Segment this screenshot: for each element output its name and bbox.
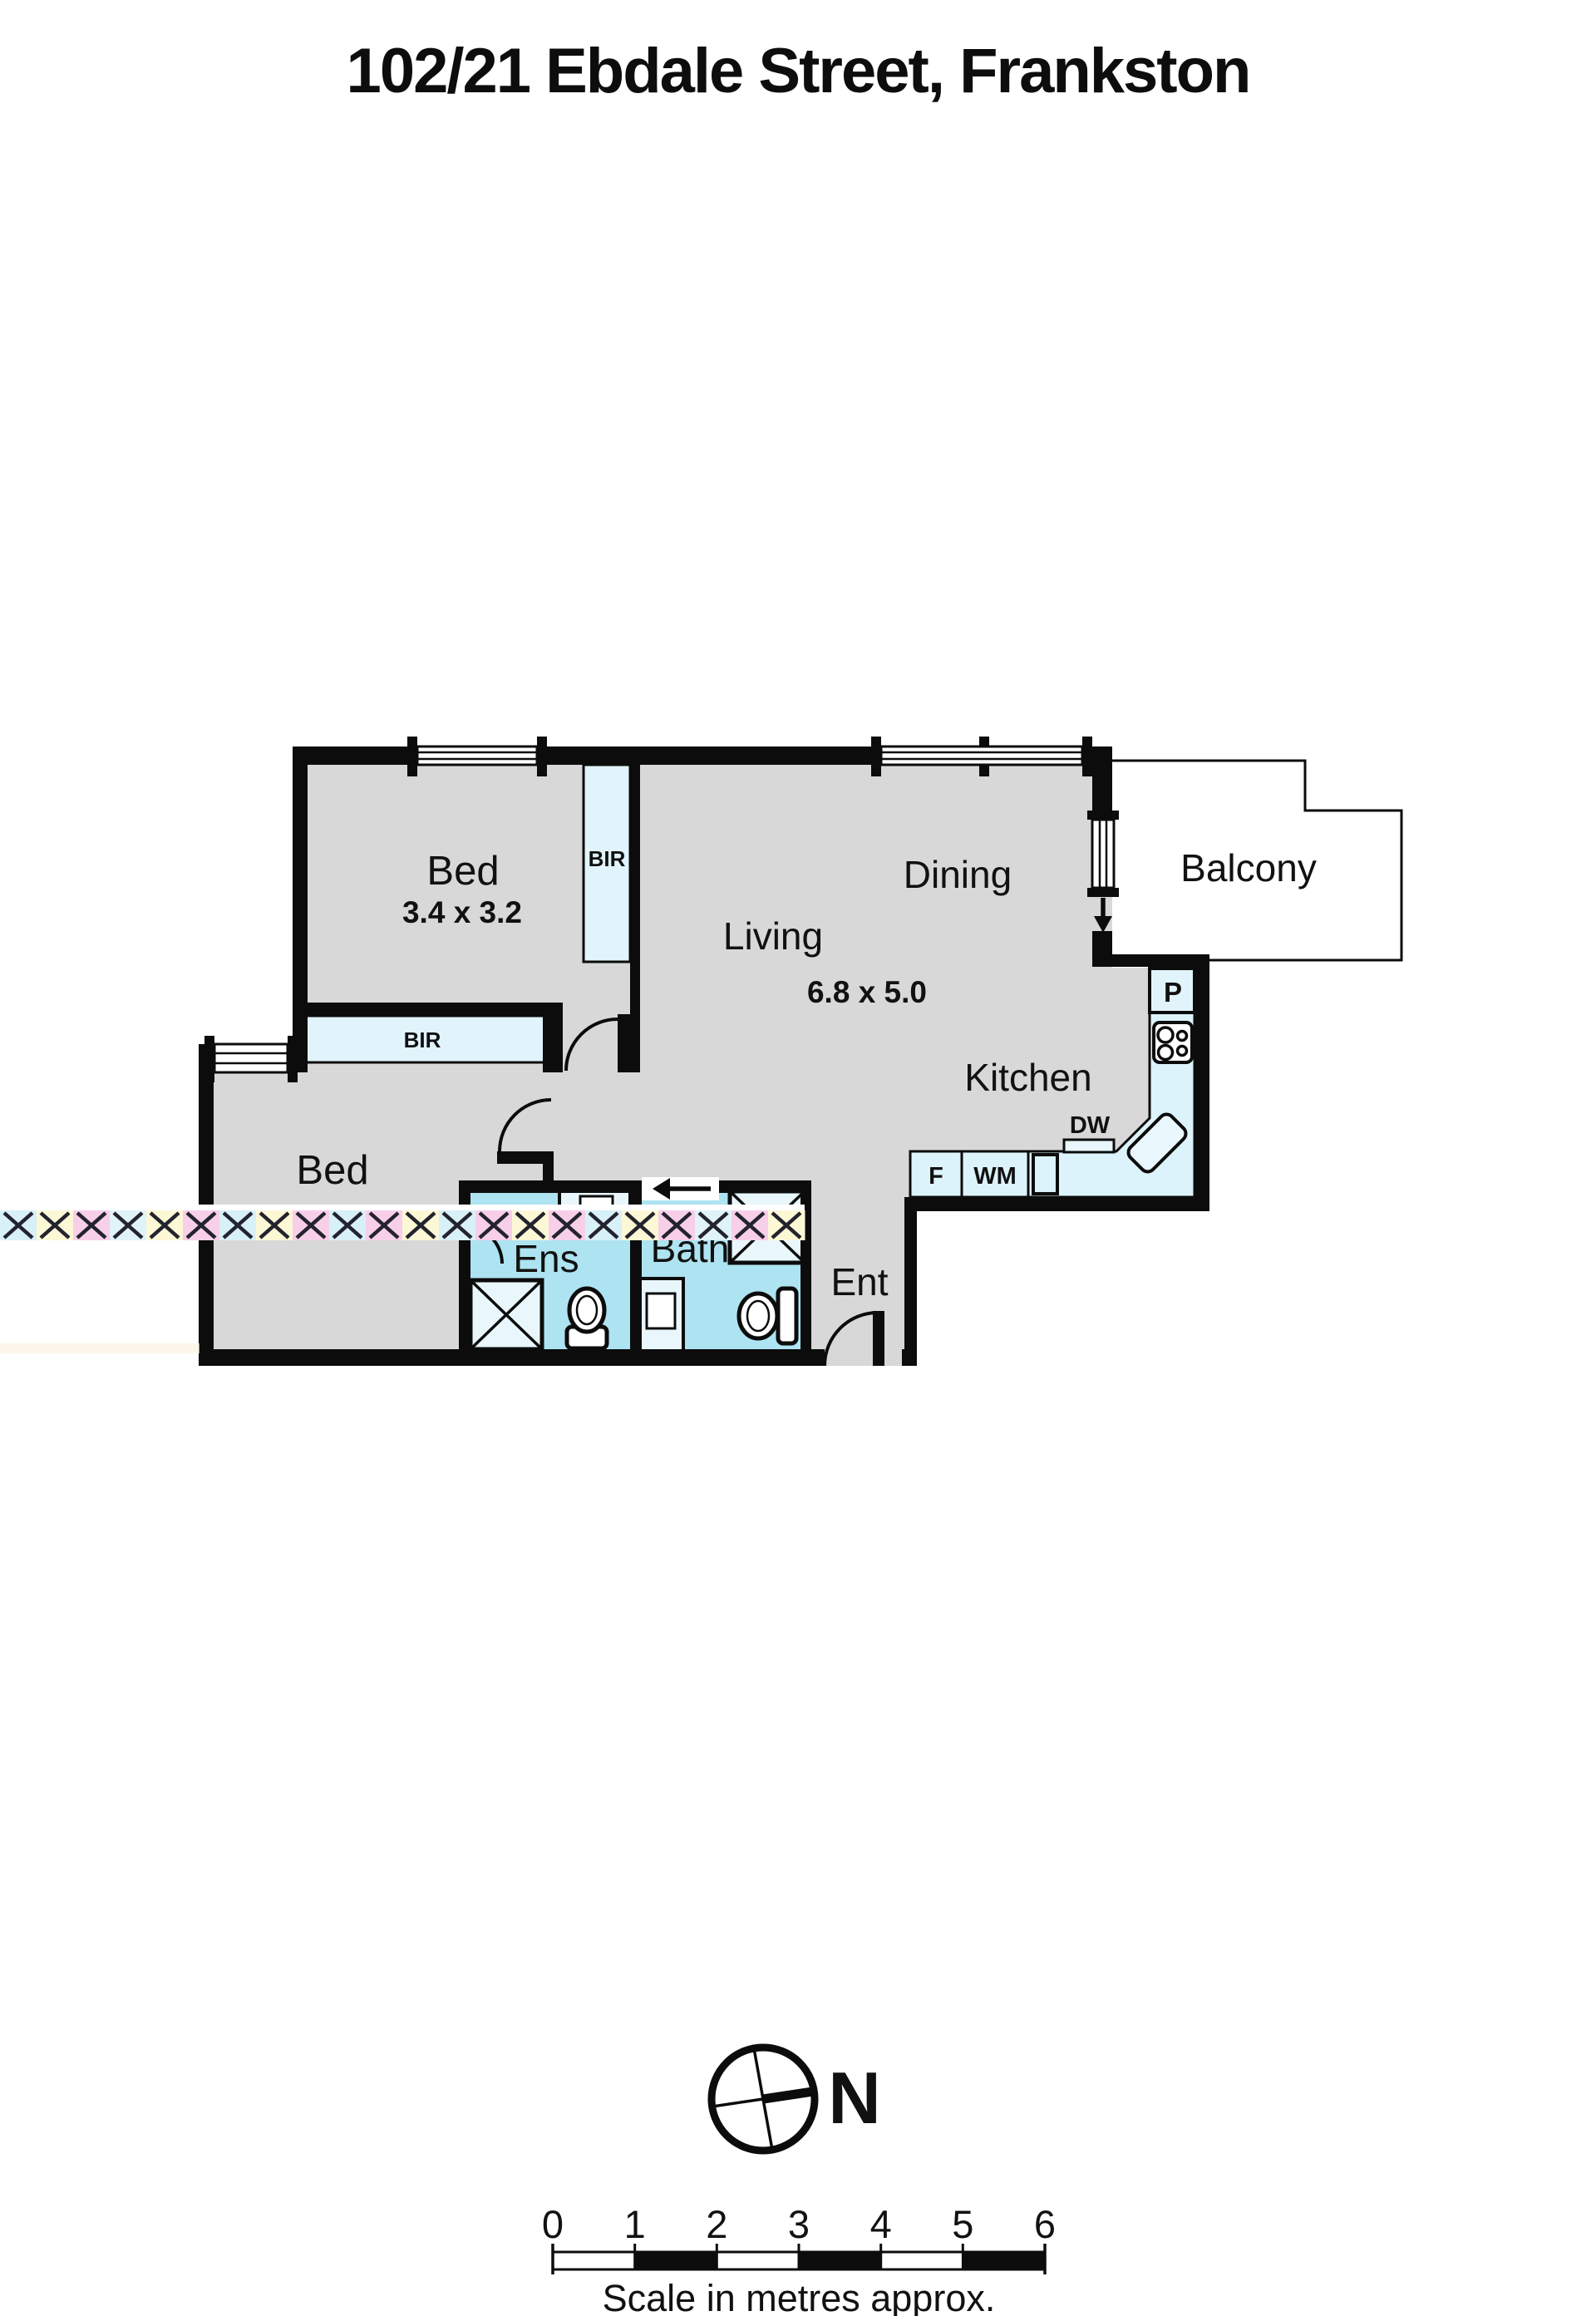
fridge-label: F [929, 1163, 943, 1190]
kitchen-label: Kitchen [964, 1056, 1091, 1099]
bench-unit [1033, 1155, 1057, 1194]
compass: N [712, 2047, 881, 2151]
ens-shower [470, 1280, 542, 1349]
scale-tick-4: 4 [870, 2202, 892, 2246]
floor-plan: BIR BIR P F WM DW [0, 0, 1596, 2316]
dining-label: Dining [904, 853, 1012, 896]
living-dims: 6.8 x 5.0 [807, 975, 927, 1009]
north-label: N [828, 2057, 881, 2139]
watermark-band [0, 1210, 805, 1240]
bed2-label: Bed [296, 1148, 368, 1193]
washing-machine-label: WM [973, 1163, 1017, 1190]
scale-tick-3: 3 [788, 2202, 810, 2246]
bath-toilet-icon [739, 1289, 796, 1343]
bath-vanity-icon [638, 1279, 683, 1353]
bir1-label: BIR [589, 846, 626, 871]
living-label: Living [723, 914, 823, 958]
pantry-label: P [1164, 977, 1182, 1008]
bed1-label: Bed [426, 849, 499, 894]
closet-bir2: BIR [306, 1016, 544, 1062]
dishwasher-label: DW [1070, 1112, 1111, 1139]
ens-label: Ens [513, 1237, 579, 1280]
bir2-label: BIR [404, 1027, 441, 1052]
scale-tick-5: 5 [952, 2202, 973, 2246]
bed1-dims: 3.4 x 3.2 [402, 895, 522, 929]
scale-tick-2: 2 [706, 2202, 727, 2246]
scale-bar: 0 1 2 3 4 5 6 Scale in metres approx. [542, 2202, 1056, 2316]
closet-bir1: BIR [584, 765, 630, 962]
dishwasher-box [1064, 1140, 1114, 1152]
ens-toilet-icon [567, 1289, 607, 1348]
scale-tick-0: 0 [542, 2202, 564, 2246]
watermark-streak [0, 1343, 199, 1353]
scale-caption: Scale in metres approx. [603, 2277, 996, 2316]
balcony-label: Balcony [1180, 846, 1317, 889]
balcony-sliding-door [1087, 811, 1119, 897]
cooktop-icon [1154, 1022, 1192, 1062]
scale-tick-1: 1 [624, 2202, 646, 2246]
watermark-tear-line [0, 1205, 805, 1210]
page: 102/21 Ebdale Street, Frankston BIR BIR … [0, 0, 1596, 2316]
scale-tick-6: 6 [1034, 2202, 1056, 2246]
entry-label: Ent [830, 1260, 888, 1303]
